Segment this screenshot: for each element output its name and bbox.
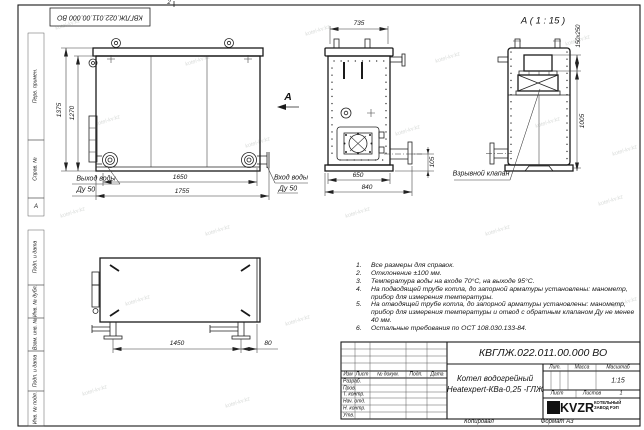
explosion-valve-label: Взрывной клапан [453,171,510,178]
frame-cell-sprav-no: Справ. № [33,157,38,181]
title-block-doc-number: КВГЛЖ.022.011.00.000 ВО [479,348,607,359]
note-item: 3.Температура воды на входе 70°С, на вых… [356,278,640,286]
frame-cell-podp-data-2: Подп. и дата [33,355,38,387]
dim-1650: 1650 [173,175,187,182]
dim-150x250: 150x250 [576,24,582,47]
frame-cell-inv-dubl: Инв. № дубл. [33,285,38,317]
col-izm: Изм [343,372,352,377]
row-prov: Пров. [343,386,356,391]
stamp-doc-number: КВГЛЖ.022.011.00.000 ВО [57,14,143,21]
frame-cell-inv-podl: Инв. № подл. [33,392,38,424]
detail-view-a [454,39,581,180]
logo-icon [547,401,560,414]
row-tkontr: Т. контр. [343,393,365,398]
dim-1755: 1755 [175,189,189,196]
format-label: Формат А3 [541,419,574,425]
col-dokum: № докум. [377,372,399,377]
row-nachotd: Нач. отд. [343,399,365,404]
water-inlet-label: Вход воды [274,175,308,182]
row-nkontr: Н. контр. [343,406,366,411]
drawing-sheet: kotel-kv.kz kotel-kv.kz kotel-kv.kz kote… [0,0,644,430]
section-arrow-letter: А [284,92,292,103]
massa-label: Масса [575,365,590,370]
drawing-linework [0,0,644,430]
col-data: Дата [430,372,443,377]
zone-marker: А [34,204,38,210]
logo-kvzr: KVZR [560,401,594,415]
note-item: 4.На подводящей трубе котла, до запорной… [356,286,640,302]
dim-80: 80 [264,341,271,348]
col-podp: Подп. [409,372,422,377]
sheet-frame [18,1,640,426]
list-label: Лист [551,392,564,397]
water-inlet-dn: Ду 50 [279,186,297,193]
masshtab-label: Масштаб [606,365,629,370]
listov-value: 1 [619,391,622,397]
dim-840: 840 [362,185,373,192]
water-outlet-dn: Ду 50 [77,187,95,194]
note-item: 2.Отклонение ±100 мм. [356,270,640,278]
lit-label: Лит. [549,365,561,370]
dim-650: 650 [353,173,364,180]
copied-label: Копировал [464,419,494,425]
note-item: 5.На отводящей трубе котла, до запорной … [356,301,640,325]
col-list: Лист [356,372,369,377]
note-item: 6.Остальные требования по ОСТ 108.030.13… [356,325,640,333]
dim-1270: 1270 [70,106,77,120]
dim-1450: 1450 [170,341,184,348]
frame-cell-vzam-inv: Взам. инв. № [33,318,38,350]
dim-105: 105 [430,157,437,168]
frame-cell-perv-primen: Перв. примен. [33,69,38,103]
dim-1005: 1005 [580,114,587,128]
water-outlet-label: Выход воды [76,176,115,183]
top-view [92,258,278,353]
detail-view-title: А ( 1 : 15 ) [521,16,565,26]
product-name-line2: Heatexpert-КВа-0,25 -ГЛЖ [447,386,543,394]
row-utv: Утв. [343,413,354,418]
scale-value: 1:15 [611,378,625,385]
dim-735: 735 [354,21,365,28]
product-name-line1: Котел водогрейный [457,375,533,383]
dim-1375: 1375 [57,103,64,117]
listov-label: Листов [583,392,601,397]
side-view [267,26,434,196]
row-razrab: Разраб. [343,379,361,384]
frame-cell-podp-data-1: Подп. и дата [33,241,38,273]
technical-notes: 1.Все размеры для справок. 2.Отклонение … [356,262,640,333]
note-item: 1.Все размеры для справок. [356,262,640,270]
logo-caption: КОТЕЛЬНЫЙ ЗАВОД РЭП [594,400,621,411]
fold-mark: 2 [167,0,170,6]
